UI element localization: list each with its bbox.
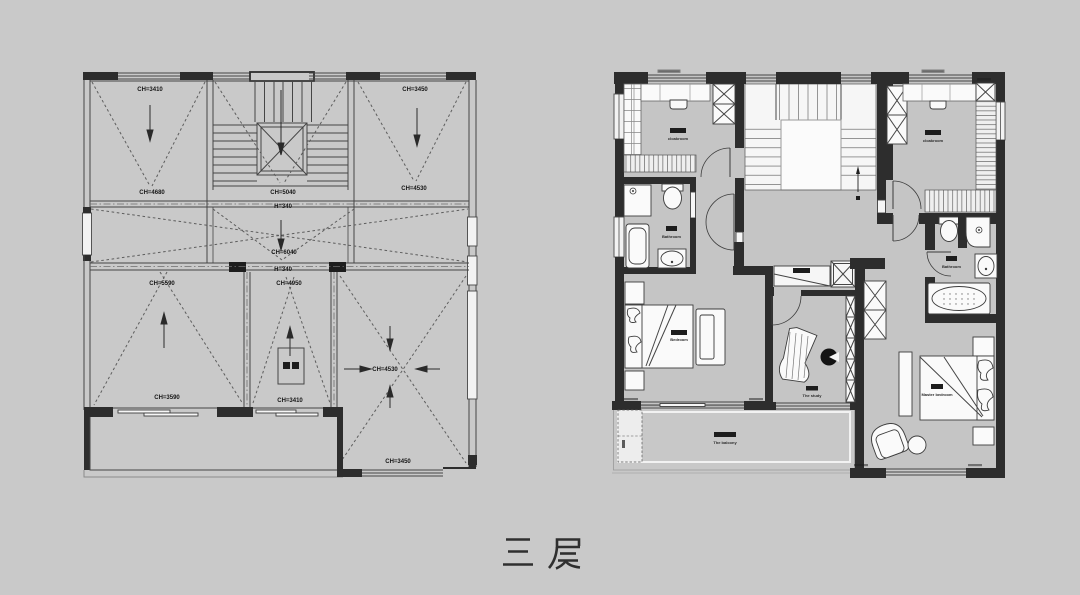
svg-text:H=340: H=340 (274, 204, 293, 210)
svg-text:CH=4680: CH=4680 (139, 190, 165, 196)
svg-text:H=340: H=340 (274, 267, 293, 273)
svg-text:Bedroom: Bedroom (670, 337, 688, 342)
svg-text:Master bedroom: Master bedroom (921, 392, 953, 397)
svg-text:CH=3450: CH=3450 (385, 459, 411, 465)
svg-text:cloakroom: cloakroom (923, 138, 944, 143)
svg-text:CH=3410: CH=3410 (137, 87, 163, 93)
svg-text:CH=3450: CH=3450 (402, 87, 428, 93)
svg-text:CH=3590: CH=3590 (154, 395, 180, 401)
svg-text:CH=4530: CH=4530 (401, 186, 427, 192)
svg-text:CH=4530: CH=4530 (372, 367, 398, 373)
svg-text:cloakroom: cloakroom (668, 136, 689, 141)
svg-text:The balcony: The balcony (713, 440, 737, 445)
svg-text:CH=5040: CH=5040 (270, 190, 296, 196)
svg-text:The study: The study (803, 393, 823, 398)
svg-text:CH=3410: CH=3410 (277, 398, 303, 404)
svg-text:Bathroom: Bathroom (662, 234, 681, 239)
svg-text:CH=6040: CH=6040 (271, 250, 297, 256)
svg-text:CH=4950: CH=4950 (276, 281, 302, 287)
svg-text:CH=5590: CH=5590 (149, 281, 175, 287)
svg-text:Bathroom: Bathroom (942, 264, 961, 269)
